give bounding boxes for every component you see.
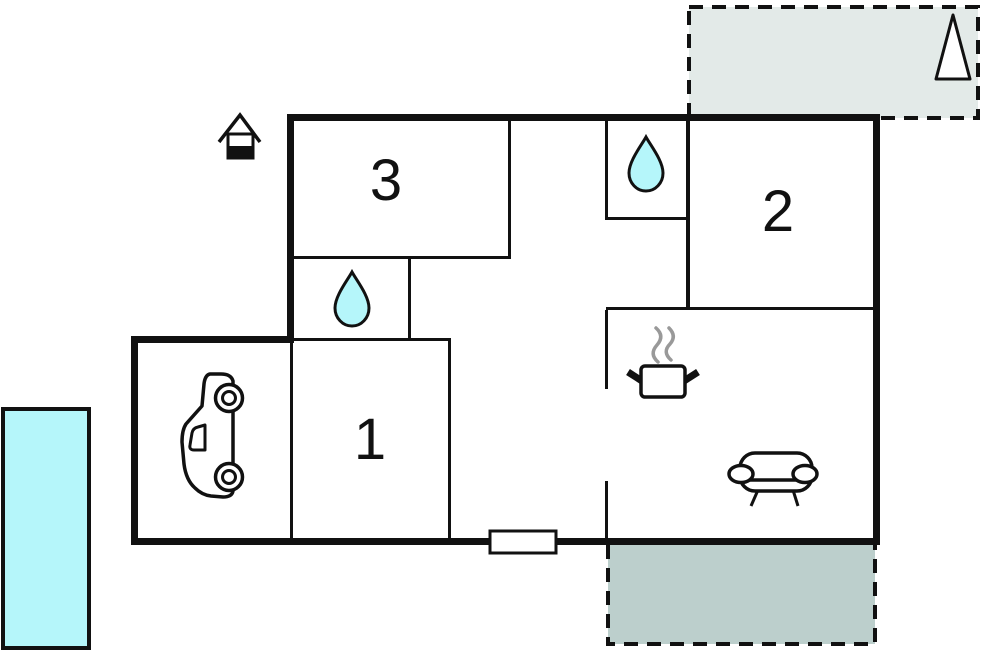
wall-room3-right xyxy=(508,121,511,259)
room-1-label: 1 xyxy=(354,407,386,472)
floor-plan: 3 2 1 xyxy=(0,0,993,652)
window-symbol xyxy=(490,531,556,553)
wall-garage-room1 xyxy=(290,343,293,538)
car-icon xyxy=(182,374,243,497)
wall-room2-left xyxy=(686,121,690,310)
wall-bath-top-left xyxy=(605,121,608,220)
room-3-label: 3 xyxy=(370,148,402,213)
wall-kitchen-top xyxy=(606,307,876,310)
floor-plan-canvas: 3 2 1 xyxy=(0,0,993,652)
wall-garage-top xyxy=(131,336,294,343)
sofa-icon xyxy=(729,453,817,506)
wall-room1-top xyxy=(294,338,451,341)
wall-outer-top xyxy=(287,114,880,121)
house-entrance-icon xyxy=(219,115,260,159)
wall-outer-right xyxy=(873,114,880,545)
steam-line xyxy=(666,328,673,360)
swimming-pool xyxy=(3,409,89,648)
terrace-bottom xyxy=(608,545,875,644)
wall-room1-right xyxy=(448,341,451,538)
water-drop-icon xyxy=(629,137,663,191)
wall-room3-bottom xyxy=(294,256,511,259)
wall-bath-left-right xyxy=(408,259,411,341)
terrace-bottom-fill xyxy=(608,545,875,644)
room-2-label: 2 xyxy=(762,179,794,244)
pot-body xyxy=(641,366,685,397)
cooking-pot-icon xyxy=(628,328,698,397)
wall-kitchen-partition-upper xyxy=(605,310,608,389)
wall-outer-left-upper xyxy=(287,114,294,343)
steam-line xyxy=(653,328,661,362)
wall-garage-left xyxy=(131,336,138,545)
wall-bath-top-bottom xyxy=(605,217,690,220)
terrace-top xyxy=(689,7,978,118)
wall-kitchen-partition-lower xyxy=(605,481,608,538)
water-drop-icon xyxy=(335,272,369,326)
